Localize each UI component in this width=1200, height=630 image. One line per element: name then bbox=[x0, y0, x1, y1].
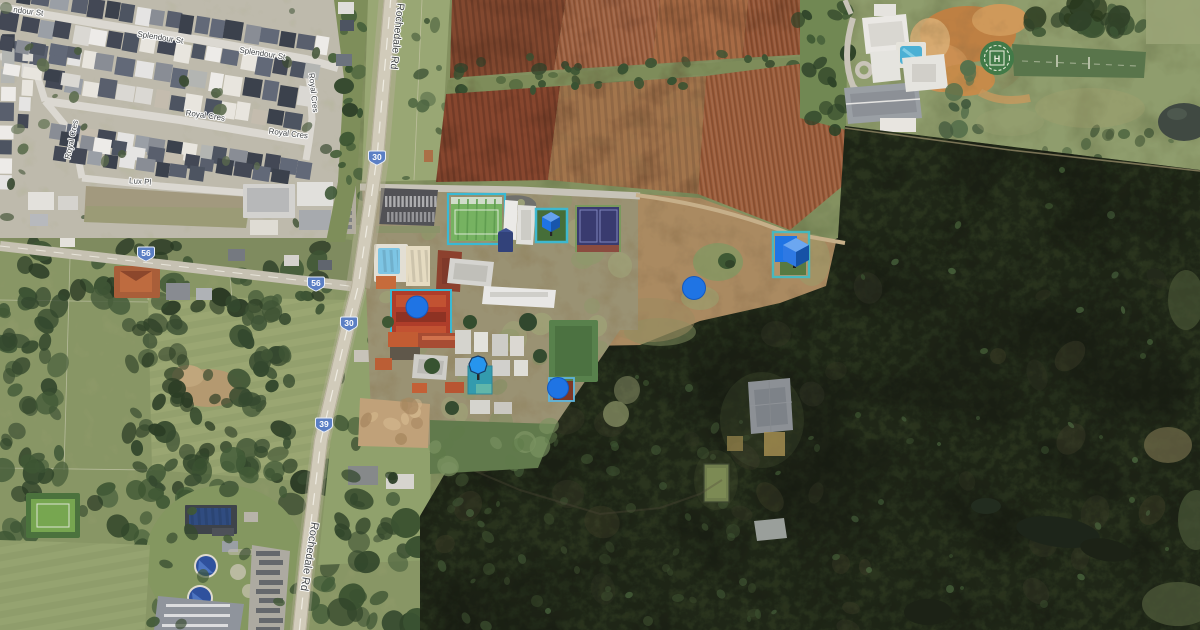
svg-text:30: 30 bbox=[372, 152, 382, 162]
svg-text:30: 30 bbox=[344, 318, 354, 328]
svg-text:Lux Pl: Lux Pl bbox=[129, 176, 152, 187]
svg-text:56: 56 bbox=[141, 248, 151, 258]
svg-text:56: 56 bbox=[311, 278, 321, 288]
svg-text:39: 39 bbox=[319, 419, 329, 429]
